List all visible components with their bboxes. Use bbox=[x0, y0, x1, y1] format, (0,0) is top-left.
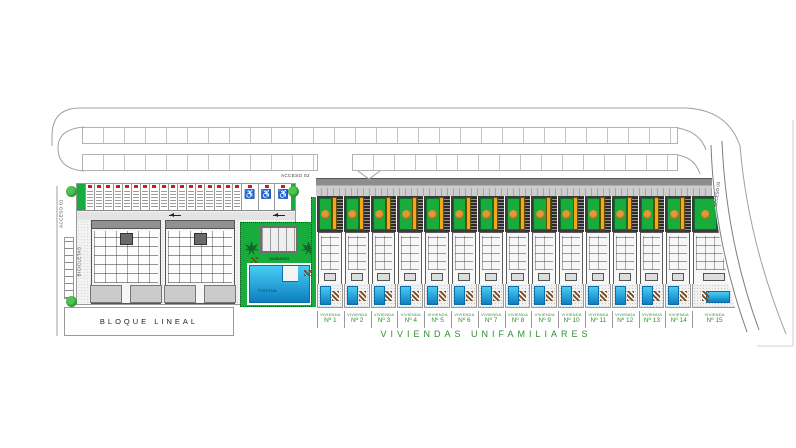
stall-number-tag bbox=[134, 185, 138, 188]
front-lawn bbox=[694, 198, 717, 230]
vivienda-unit: VIVIENDA Nº 5 bbox=[423, 196, 450, 328]
vivienda-label: VIVIENDA Nº 14 bbox=[665, 311, 691, 328]
vivienda-label: VIVIENDA Nº 8 bbox=[505, 311, 531, 328]
vivienda-label: VIVIENDA Nº 3 bbox=[371, 311, 397, 328]
unit-entry-band bbox=[639, 196, 665, 232]
stair-core bbox=[194, 233, 207, 245]
parking-stall bbox=[214, 184, 223, 210]
vivienda-label: VIVIENDA Nº 12 bbox=[612, 311, 638, 328]
unit-entry-band bbox=[478, 196, 504, 232]
house-plan bbox=[372, 232, 396, 284]
tree-icon bbox=[482, 210, 491, 219]
sun-lounger-icon bbox=[466, 291, 473, 301]
vivienda-unit: VIVIENDA Nº 9 bbox=[530, 196, 557, 328]
unit-entry-band bbox=[424, 196, 450, 232]
rear-terrace bbox=[612, 284, 638, 308]
bicycle-parking-label: BICICLETAS bbox=[77, 237, 82, 287]
vivienda-label: VIVIENDA Nº 2 bbox=[344, 311, 370, 328]
rooms-pattern bbox=[589, 236, 607, 270]
sun-lounger-icon bbox=[493, 291, 500, 301]
stall-text bbox=[234, 190, 240, 207]
stall-text bbox=[179, 190, 185, 207]
carport-hatch bbox=[444, 197, 450, 231]
sun-lounger-icon bbox=[359, 291, 366, 301]
stall-number-tag bbox=[265, 185, 269, 188]
unit-entry-band bbox=[505, 196, 531, 232]
rooms-pattern bbox=[696, 236, 732, 270]
wheelchair-icon: ♿ bbox=[242, 190, 258, 199]
parking-stall: ♿ bbox=[258, 184, 275, 210]
rooms-pattern bbox=[428, 236, 446, 270]
stall-number-tag bbox=[189, 185, 193, 188]
private-pool bbox=[534, 286, 545, 305]
carport-hatch bbox=[337, 197, 343, 231]
carport-hatch bbox=[685, 197, 691, 231]
parking-stall bbox=[159, 184, 168, 210]
private-pool bbox=[347, 286, 358, 305]
house-plan bbox=[613, 232, 637, 284]
private-pool bbox=[481, 286, 492, 305]
vivienda-unit: VIVIENDA Nº 7 bbox=[477, 196, 504, 328]
parking-stall bbox=[232, 184, 241, 210]
porch bbox=[458, 273, 470, 281]
vivienda-unit: VIVIENDA Nº 6 bbox=[450, 196, 477, 328]
front-lawn bbox=[373, 198, 386, 230]
stall-text bbox=[197, 190, 203, 207]
access-02-label: ACCESO 02 bbox=[281, 173, 310, 178]
stall-number-tag bbox=[281, 185, 285, 188]
rooms-pattern bbox=[616, 236, 634, 270]
front-lawn bbox=[641, 198, 654, 230]
stall-number-tag bbox=[97, 185, 101, 188]
bush-icon bbox=[288, 186, 299, 197]
vivienda-unit: VIVIENDA Nº 11 bbox=[584, 196, 611, 328]
sun-lounger-icon bbox=[304, 270, 311, 276]
sun-lounger-icon bbox=[439, 291, 446, 301]
carport-hatch bbox=[525, 197, 531, 231]
bush-icon bbox=[66, 186, 77, 197]
parking-stall bbox=[94, 184, 103, 210]
unit-entry-band bbox=[585, 196, 611, 232]
vivienda-label: VIVIENDA Nº 1 bbox=[317, 311, 343, 328]
rear-terrace bbox=[397, 284, 423, 308]
house-plan bbox=[452, 232, 476, 284]
parking-stall bbox=[131, 184, 140, 210]
sidewalk-pavers bbox=[316, 188, 712, 196]
vivienda-unit: VIVIENDA Nº 14 bbox=[664, 196, 691, 328]
rooms-pattern bbox=[535, 236, 553, 270]
carport-hatch bbox=[471, 197, 477, 231]
private-pool bbox=[615, 286, 626, 305]
tree-icon bbox=[589, 210, 598, 219]
front-lawn bbox=[399, 198, 412, 230]
house-plan bbox=[693, 232, 735, 284]
parking-stall: ♿ bbox=[241, 184, 258, 210]
stall-number-tag bbox=[162, 185, 166, 188]
gym-label: GIMNASIO bbox=[249, 256, 309, 261]
bloque-lineal-caption: BLOQUE LINEAL bbox=[64, 307, 234, 336]
parking-stall bbox=[85, 184, 94, 210]
terrace bbox=[130, 285, 162, 303]
stall-number-tag bbox=[152, 185, 156, 188]
stall-text bbox=[142, 190, 148, 207]
parking-stall bbox=[103, 184, 112, 210]
rooms-pattern bbox=[375, 236, 393, 270]
private-pool bbox=[320, 286, 331, 305]
front-lawn bbox=[614, 198, 627, 230]
porch bbox=[511, 273, 523, 281]
parking-stall bbox=[177, 184, 186, 210]
vivienda-label-line2: Nº 1 bbox=[318, 317, 343, 324]
vivienda-label-line2: Nº 12 bbox=[613, 317, 638, 324]
pergola-strip bbox=[718, 197, 723, 230]
parking-stalls: ♿ ♿ ♿ bbox=[85, 184, 291, 210]
house-plan bbox=[586, 232, 610, 284]
house-plan bbox=[479, 232, 503, 284]
porch bbox=[431, 273, 443, 281]
vivienda-unit: VIVIENDA Nº 15 bbox=[691, 196, 736, 328]
bicycle-rack bbox=[64, 237, 74, 299]
rooms-pattern bbox=[401, 236, 419, 270]
house-plan bbox=[666, 232, 690, 284]
parking-stall bbox=[223, 184, 232, 210]
sun-lounger-icon bbox=[251, 257, 258, 263]
viviendas-section-label: VIVIENDAS UNIFAMILIARES bbox=[336, 329, 636, 339]
stall-number-tag bbox=[88, 185, 92, 188]
parking-stall bbox=[113, 184, 122, 210]
private-pool bbox=[706, 291, 730, 303]
front-lawn bbox=[346, 198, 359, 230]
rear-terrace bbox=[639, 284, 665, 308]
street-parking-strip-south-west bbox=[82, 154, 318, 171]
porch bbox=[485, 273, 497, 281]
rear-terrace bbox=[665, 284, 691, 308]
rooms-pattern bbox=[348, 236, 366, 270]
vivienda-label-line2: Nº 13 bbox=[640, 317, 665, 324]
pool-deck-notch bbox=[282, 266, 298, 282]
vivienda-label-line2: Nº 10 bbox=[559, 317, 584, 324]
unit-entry-band bbox=[612, 196, 638, 232]
vivienda-label-line2: Nº 8 bbox=[506, 317, 531, 324]
stall-text bbox=[96, 190, 102, 207]
stair-core bbox=[120, 233, 133, 245]
apartment-block-2: ESCALERA 02 bbox=[165, 220, 235, 304]
vivienda-label: VIVIENDA Nº 9 bbox=[531, 311, 557, 328]
porch bbox=[592, 273, 604, 281]
bush-icon bbox=[66, 296, 77, 307]
vivienda-label-line2: Nº 7 bbox=[479, 317, 504, 324]
site-plan: ACCESO 02 bbox=[0, 0, 796, 448]
house-plan bbox=[640, 232, 664, 284]
bloque-lineal-label: BLOQUE LINEAL bbox=[100, 317, 198, 326]
porch bbox=[324, 273, 336, 281]
unit-entry-band bbox=[531, 196, 557, 232]
parking-stall bbox=[140, 184, 149, 210]
carport-hatch bbox=[364, 197, 370, 231]
sun-lounger-icon bbox=[332, 291, 339, 301]
sun-lounger-icon bbox=[519, 291, 526, 301]
stall-text bbox=[188, 190, 194, 207]
parking-stall bbox=[204, 184, 213, 210]
pool-label: PISCINA bbox=[250, 288, 285, 293]
stair-core-roof: ESCALERA 01 bbox=[92, 221, 160, 229]
rooms-pattern bbox=[643, 236, 661, 270]
unit-entry-band bbox=[371, 196, 397, 232]
rear-terrace bbox=[531, 284, 557, 308]
stall-text bbox=[124, 190, 130, 207]
stall-number-tag bbox=[235, 185, 239, 188]
house-plan bbox=[345, 232, 369, 284]
stall-text bbox=[216, 190, 222, 207]
vivienda-label-line2: Nº 14 bbox=[666, 317, 691, 324]
stall-number-tag bbox=[198, 185, 202, 188]
porch bbox=[351, 273, 363, 281]
stall-text bbox=[133, 190, 139, 207]
porch bbox=[377, 273, 389, 281]
vivienda-label: VIVIENDA Nº 5 bbox=[424, 311, 450, 328]
carport-hatch bbox=[632, 197, 638, 231]
street-parking-strip-south-east bbox=[352, 154, 678, 171]
unit-entry-band bbox=[451, 196, 477, 232]
sun-lounger-icon bbox=[627, 291, 634, 301]
porch bbox=[619, 273, 631, 281]
private-pool bbox=[374, 286, 385, 305]
rear-terrace bbox=[317, 284, 343, 308]
terrace bbox=[164, 285, 196, 303]
sun-lounger-icon bbox=[573, 291, 580, 301]
rear-terrace bbox=[585, 284, 611, 308]
front-lawn bbox=[587, 198, 600, 230]
rear-terrace bbox=[451, 284, 477, 308]
vivienda-label: VIVIENDA Nº 15 bbox=[692, 311, 736, 328]
private-pool bbox=[454, 286, 465, 305]
vivienda-label-line2: Nº 4 bbox=[398, 317, 423, 324]
house-plan bbox=[559, 232, 583, 284]
carport-hatch bbox=[418, 197, 424, 231]
stair-core-roof: ESCALERA 02 bbox=[166, 221, 234, 229]
rooms-pattern bbox=[455, 236, 473, 270]
tree-icon bbox=[562, 210, 571, 219]
tree-icon bbox=[509, 210, 518, 219]
front-lawn bbox=[426, 198, 439, 230]
street-parking-strip-north bbox=[82, 127, 678, 144]
vivienda-label-line2: Nº 5 bbox=[425, 317, 450, 324]
tree-icon bbox=[616, 210, 625, 219]
tree-icon bbox=[670, 210, 679, 219]
communal-pool: PISCINA bbox=[249, 265, 310, 303]
stall-number-tag bbox=[208, 185, 212, 188]
tree-icon bbox=[643, 210, 652, 219]
private-pool bbox=[668, 286, 679, 305]
porch bbox=[538, 273, 550, 281]
tree-icon bbox=[536, 210, 545, 219]
sun-lounger-icon bbox=[702, 291, 709, 301]
vivienda-unit: VIVIENDA Nº 3 bbox=[370, 196, 397, 328]
stall-number-tag bbox=[116, 185, 120, 188]
direction-arrow-icon bbox=[273, 215, 285, 216]
tree-icon bbox=[321, 210, 330, 219]
front-lawn bbox=[480, 198, 493, 230]
carport-hatch bbox=[605, 197, 611, 231]
vivienda-label: VIVIENDA Nº 7 bbox=[478, 311, 504, 328]
private-pool bbox=[561, 286, 572, 305]
gym-building bbox=[260, 226, 298, 253]
planter-strip bbox=[77, 184, 85, 210]
unit-entry-band bbox=[397, 196, 423, 232]
sun-lounger-icon bbox=[680, 291, 687, 301]
rear-terrace bbox=[505, 284, 531, 308]
rooms-pattern bbox=[509, 236, 527, 270]
sun-lounger-icon bbox=[412, 291, 419, 301]
stall-number-tag bbox=[248, 185, 252, 188]
stall-text bbox=[170, 190, 176, 207]
rear-terrace bbox=[558, 284, 584, 308]
house-plan bbox=[425, 232, 449, 284]
sun-lounger-icon bbox=[653, 291, 660, 301]
private-pool bbox=[427, 286, 438, 305]
stall-text bbox=[225, 190, 231, 207]
private-pool bbox=[400, 286, 411, 305]
parking-stall bbox=[168, 184, 177, 210]
tree-icon bbox=[375, 210, 384, 219]
vivienda-unit: VIVIENDA Nº 10 bbox=[557, 196, 584, 328]
stall-number-tag bbox=[217, 185, 221, 188]
stall-text bbox=[87, 190, 93, 207]
rear-terrace bbox=[478, 284, 504, 308]
sun-lounger-icon bbox=[546, 291, 553, 301]
direction-arrow-icon bbox=[169, 215, 181, 216]
front-lawn bbox=[507, 198, 520, 230]
vivienda-unit: VIVIENDA Nº 8 bbox=[504, 196, 531, 328]
rear-terrace bbox=[424, 284, 450, 308]
carport-hatch bbox=[552, 197, 558, 231]
access-01-label: ACCESO 01 bbox=[59, 189, 64, 239]
porch bbox=[703, 273, 725, 281]
private-pool bbox=[508, 286, 519, 305]
tree-icon bbox=[348, 210, 357, 219]
vivienda-unit: VIVIENDA Nº 2 bbox=[343, 196, 370, 328]
vivienda-unit: VIVIENDA Nº 12 bbox=[611, 196, 638, 328]
tree-icon bbox=[428, 210, 437, 219]
front-lawn bbox=[533, 198, 546, 230]
vivienda-label-line2: Nº 9 bbox=[532, 317, 557, 324]
stall-text bbox=[161, 190, 167, 207]
wheelchair-icon: ♿ bbox=[259, 190, 275, 199]
viviendas-row: VIVIENDA Nº 1 VIVIENDA Nº 2 bbox=[316, 196, 736, 328]
house-plan bbox=[532, 232, 556, 284]
rooms-pattern bbox=[669, 236, 687, 270]
private-pool bbox=[642, 286, 653, 305]
stall-number-tag bbox=[171, 185, 175, 188]
rooms-pattern bbox=[562, 236, 580, 270]
terrace bbox=[90, 285, 122, 303]
vivienda-unit: VIVIENDA Nº 4 bbox=[396, 196, 423, 328]
parking-stall bbox=[195, 184, 204, 210]
private-pool bbox=[588, 286, 599, 305]
house-plan bbox=[398, 232, 422, 284]
tree-icon bbox=[402, 210, 411, 219]
vivienda-label: VIVIENDA Nº 13 bbox=[639, 311, 665, 328]
parking-stall bbox=[186, 184, 195, 210]
rooms-pattern bbox=[321, 236, 339, 270]
stall-text bbox=[151, 190, 157, 207]
terrace bbox=[204, 285, 236, 303]
stall-text bbox=[115, 190, 121, 207]
stall-number-tag bbox=[180, 185, 184, 188]
vivienda-label-line2: Nº 3 bbox=[372, 317, 397, 324]
front-lawn bbox=[453, 198, 466, 230]
unit-entry-band bbox=[692, 196, 736, 232]
vivienda-label: VIVIENDA Nº 6 bbox=[451, 311, 477, 328]
carport-hatch bbox=[578, 197, 584, 231]
porch bbox=[404, 273, 416, 281]
tree-icon bbox=[455, 210, 464, 219]
rear-terrace bbox=[692, 284, 736, 308]
front-lawn bbox=[667, 198, 680, 230]
palm-tree-icon bbox=[244, 241, 259, 256]
porch bbox=[645, 273, 657, 281]
stall-number-tag bbox=[106, 185, 110, 188]
viviendas-access-road bbox=[316, 178, 712, 196]
carport-hatch bbox=[726, 197, 736, 231]
carport-hatch bbox=[498, 197, 504, 231]
vivienda-label-line2: Nº 11 bbox=[586, 317, 611, 324]
unit-entry-band bbox=[558, 196, 584, 232]
parking-stall bbox=[149, 184, 158, 210]
unit-entry-band bbox=[344, 196, 370, 232]
residents-parking-row: ♿ ♿ ♿ bbox=[77, 184, 295, 211]
unit-entry-band bbox=[317, 196, 343, 232]
vivienda-label-line2: Nº 15 bbox=[693, 317, 736, 324]
stall-text bbox=[105, 190, 111, 207]
vivienda-label-line2: Nº 2 bbox=[345, 317, 370, 324]
rooms-pattern bbox=[482, 236, 500, 270]
house-plan bbox=[506, 232, 530, 284]
apartment-block-1: ESCALERA 01 bbox=[91, 220, 161, 304]
stall-number-tag bbox=[226, 185, 230, 188]
porch bbox=[565, 273, 577, 281]
tree-icon bbox=[701, 210, 710, 219]
carport-hatch bbox=[659, 197, 665, 231]
vivienda-unit: VIVIENDA Nº 13 bbox=[638, 196, 665, 328]
unit-entry-band bbox=[665, 196, 691, 232]
stall-number-tag bbox=[143, 185, 147, 188]
sun-lounger-icon bbox=[600, 291, 607, 301]
vivienda-label: VIVIENDA Nº 11 bbox=[585, 311, 611, 328]
stall-number-tag bbox=[125, 185, 129, 188]
porch bbox=[672, 273, 684, 281]
sun-lounger-icon bbox=[385, 291, 392, 301]
front-lawn bbox=[319, 198, 332, 230]
vivienda-label: VIVIENDA Nº 10 bbox=[558, 311, 584, 328]
driveway bbox=[77, 212, 295, 220]
front-lawn bbox=[560, 198, 573, 230]
vivienda-label: VIVIENDA Nº 4 bbox=[397, 311, 423, 328]
vivienda-unit: VIVIENDA Nº 1 bbox=[316, 196, 343, 328]
vivienda-label-line2: Nº 6 bbox=[452, 317, 477, 324]
parking-stall bbox=[122, 184, 131, 210]
rear-terrace bbox=[344, 284, 370, 308]
communal-garden: GIMNASIO PISCINA bbox=[240, 222, 316, 307]
rear-terrace bbox=[371, 284, 397, 308]
stall-text bbox=[206, 190, 212, 207]
carport-hatch bbox=[391, 197, 397, 231]
house-plan bbox=[318, 232, 342, 284]
